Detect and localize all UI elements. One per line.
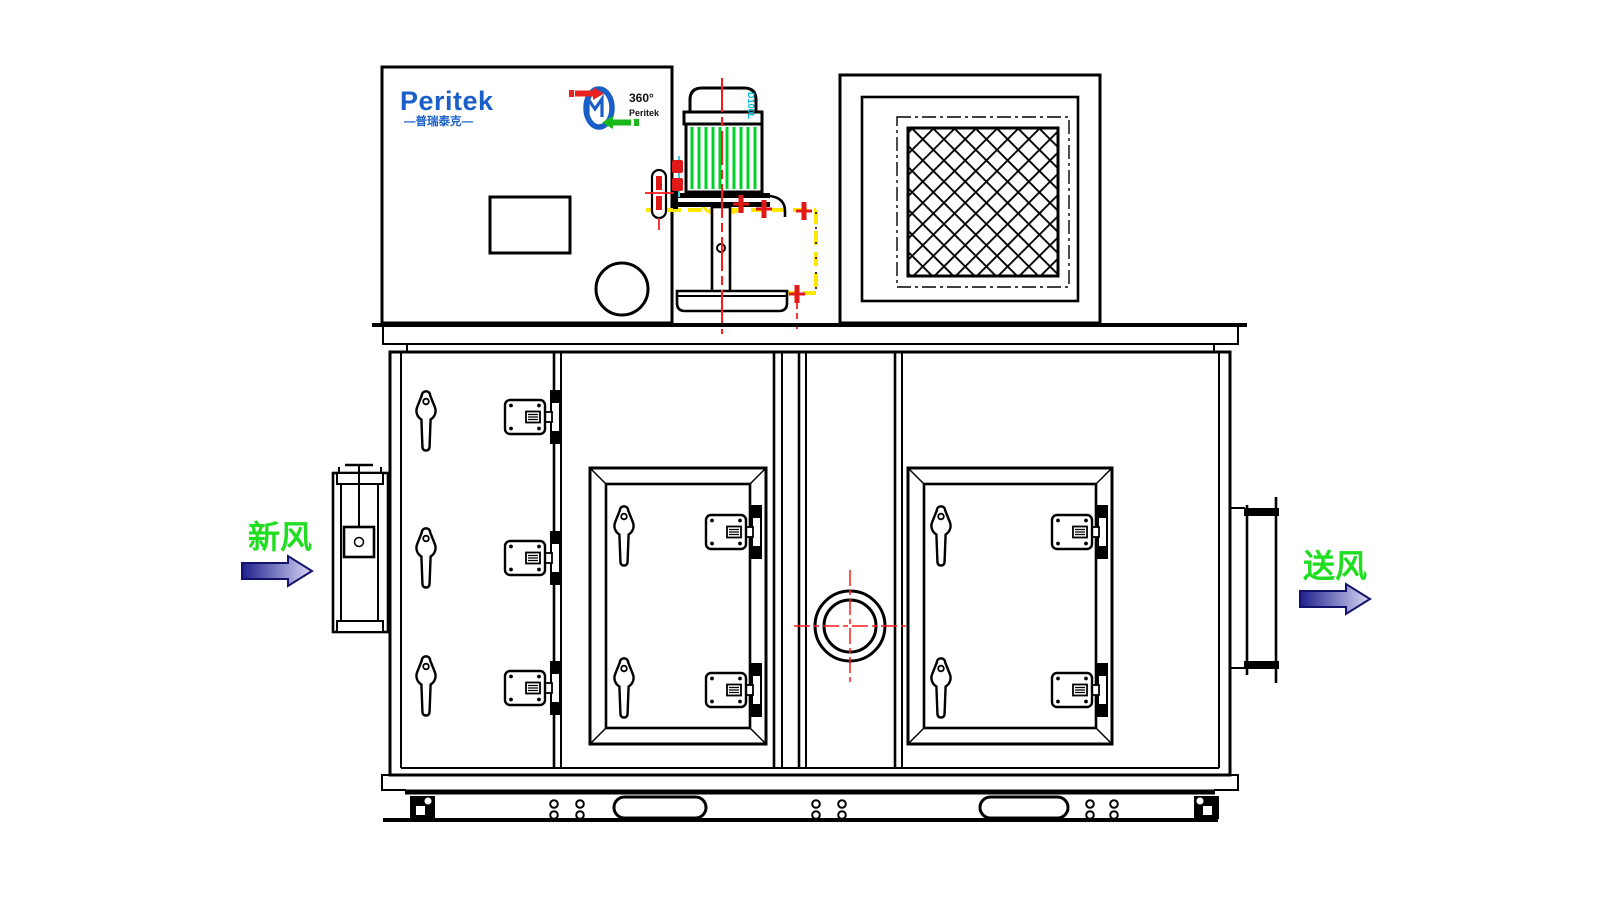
inlet-flow: 新风 bbox=[242, 519, 312, 586]
base-step-right bbox=[1214, 775, 1238, 790]
outlet-arrow-icon bbox=[1300, 584, 1370, 614]
dehumidifier-engineering-drawing: Peritek —普瑞泰克— 360° Peritek bbox=[0, 0, 1613, 897]
motor: D100L bbox=[673, 88, 785, 217]
lifting-foot bbox=[1194, 796, 1219, 819]
top-electrical-box: Peritek —普瑞泰克— 360° Peritek bbox=[382, 67, 672, 323]
right-door bbox=[908, 468, 1112, 744]
base-hook bbox=[770, 196, 785, 217]
inlet-label: 新风 bbox=[248, 519, 312, 555]
roof-step-right bbox=[1214, 327, 1238, 352]
logo-subtext: —普瑞泰克— bbox=[404, 114, 473, 128]
forklift-slot bbox=[614, 797, 706, 818]
motor-base-plate bbox=[678, 193, 770, 198]
outlet-label: 送风 bbox=[1303, 548, 1367, 584]
middle-door bbox=[590, 468, 766, 744]
outlet-flange bbox=[1230, 497, 1279, 683]
roof-panel bbox=[372, 325, 1247, 352]
roof-step-left bbox=[383, 327, 407, 352]
motor-frame bbox=[686, 124, 762, 192]
outlet-flow: 送风 bbox=[1300, 548, 1370, 614]
base-step-left bbox=[382, 775, 406, 790]
filter-box bbox=[840, 75, 1100, 323]
lifting-foot bbox=[410, 796, 435, 819]
badge-degree-text: 360° bbox=[629, 91, 654, 105]
inlet-assembly bbox=[333, 465, 388, 632]
pedestal-foot bbox=[677, 291, 787, 311]
logo-text: Peritek bbox=[400, 86, 494, 116]
motor-pedestal bbox=[677, 207, 787, 311]
motor-frame-label: D100L bbox=[746, 92, 756, 120]
cabinet bbox=[390, 352, 1230, 775]
inlet-arrow-icon bbox=[242, 556, 312, 586]
badge-brand-text: Peritek bbox=[629, 108, 660, 118]
access-window bbox=[490, 197, 570, 253]
forklift-slot bbox=[980, 797, 1068, 818]
inspection-hole bbox=[596, 263, 648, 315]
base-frame bbox=[382, 775, 1238, 820]
filter-grille bbox=[908, 128, 1058, 276]
